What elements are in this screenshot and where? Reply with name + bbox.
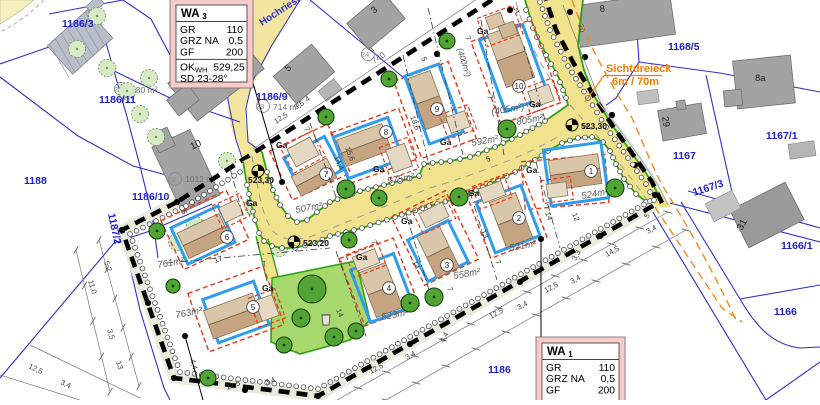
svg-text:8a: 8a [755, 73, 766, 84]
svg-text:200: 200 [598, 385, 615, 396]
svg-text:2: 2 [517, 214, 522, 223]
svg-text:GF: GF [546, 385, 560, 396]
svg-text:Ga: Ga [440, 137, 452, 147]
svg-text:SD 23-28°: SD 23-28° [180, 74, 228, 85]
svg-text:1167: 1167 [673, 150, 696, 162]
svg-text:1186/11: 1186/11 [99, 94, 136, 106]
svg-text:GR: GR [546, 363, 561, 374]
svg-text:Ga: Ga [356, 252, 368, 262]
svg-text:22: 22 [168, 175, 176, 184]
svg-text:110: 110 [227, 25, 244, 36]
svg-text:1166/1: 1166/1 [781, 240, 813, 252]
svg-text:GRZ NA: GRZ NA [180, 36, 219, 47]
svg-text:1166: 1166 [774, 306, 797, 318]
svg-text:1188: 1188 [24, 175, 47, 187]
svg-text:Ga: Ga [373, 164, 385, 174]
svg-text:1167/1: 1167/1 [766, 130, 798, 142]
svg-text:523,30: 523,30 [248, 175, 274, 185]
svg-text:GF: GF [180, 47, 194, 58]
svg-text:523,20: 523,20 [303, 238, 329, 248]
svg-text:6m / 70m: 6m / 70m [612, 76, 659, 88]
svg-text:9: 9 [435, 105, 440, 114]
svg-text:5: 5 [251, 303, 256, 312]
svg-text:Sichtdreieck: Sichtdreieck [606, 63, 672, 75]
svg-text:GRZ NA: GRZ NA [546, 374, 585, 385]
svg-text:200: 200 [226, 47, 243, 58]
svg-text:10: 10 [515, 82, 524, 91]
svg-text:1186/3: 1186/3 [62, 18, 94, 30]
svg-text:Ga: Ga [468, 188, 480, 198]
svg-text:GR: GR [180, 25, 195, 36]
svg-text:4: 4 [387, 284, 392, 293]
svg-text:1186/9: 1186/9 [256, 91, 288, 103]
svg-text:Ga: Ga [526, 165, 538, 175]
svg-text:29: 29 [659, 116, 672, 128]
svg-text:0,5: 0,5 [601, 374, 616, 385]
svg-text:1186: 1186 [488, 364, 511, 376]
svg-text:1168/5: 1168/5 [668, 41, 700, 53]
svg-text:OKWH 529,25: OKWH 529,25 [180, 63, 245, 75]
svg-text:Ga: Ga [529, 99, 541, 109]
svg-text:8: 8 [384, 128, 389, 137]
svg-text:1186/10: 1186/10 [132, 191, 170, 203]
svg-text:Ga: Ga [262, 283, 274, 293]
svg-text:110: 110 [599, 363, 616, 374]
svg-text:7: 7 [324, 170, 329, 179]
svg-text:1: 1 [589, 167, 594, 176]
svg-text:Ga: Ga [477, 26, 489, 36]
svg-text:6: 6 [225, 233, 230, 242]
svg-text:0,5: 0,5 [229, 36, 244, 47]
svg-text:24: 24 [361, 50, 369, 59]
svg-text:Ga: Ga [246, 198, 258, 208]
svg-text:Ga: Ga [276, 140, 288, 150]
svg-text:3: 3 [445, 261, 450, 270]
